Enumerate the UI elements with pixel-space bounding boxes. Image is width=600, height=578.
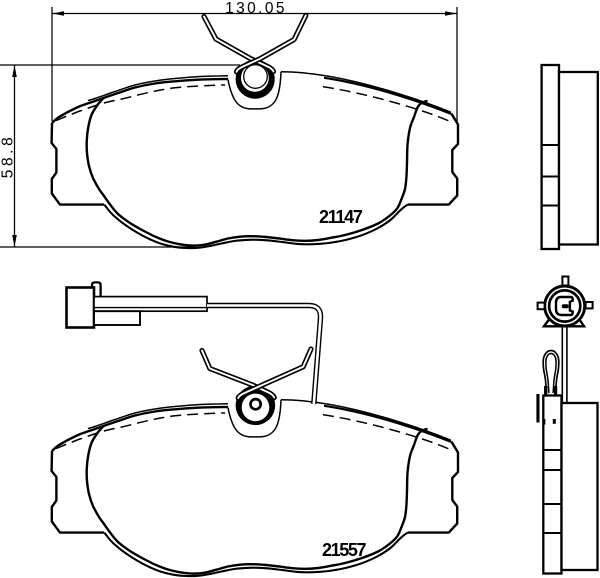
svg-text:21147: 21147 [319,207,363,227]
svg-text:130.05: 130.05 [225,0,287,17]
svg-text:58.8: 58.8 [0,134,17,179]
svg-text:21557: 21557 [322,540,366,560]
